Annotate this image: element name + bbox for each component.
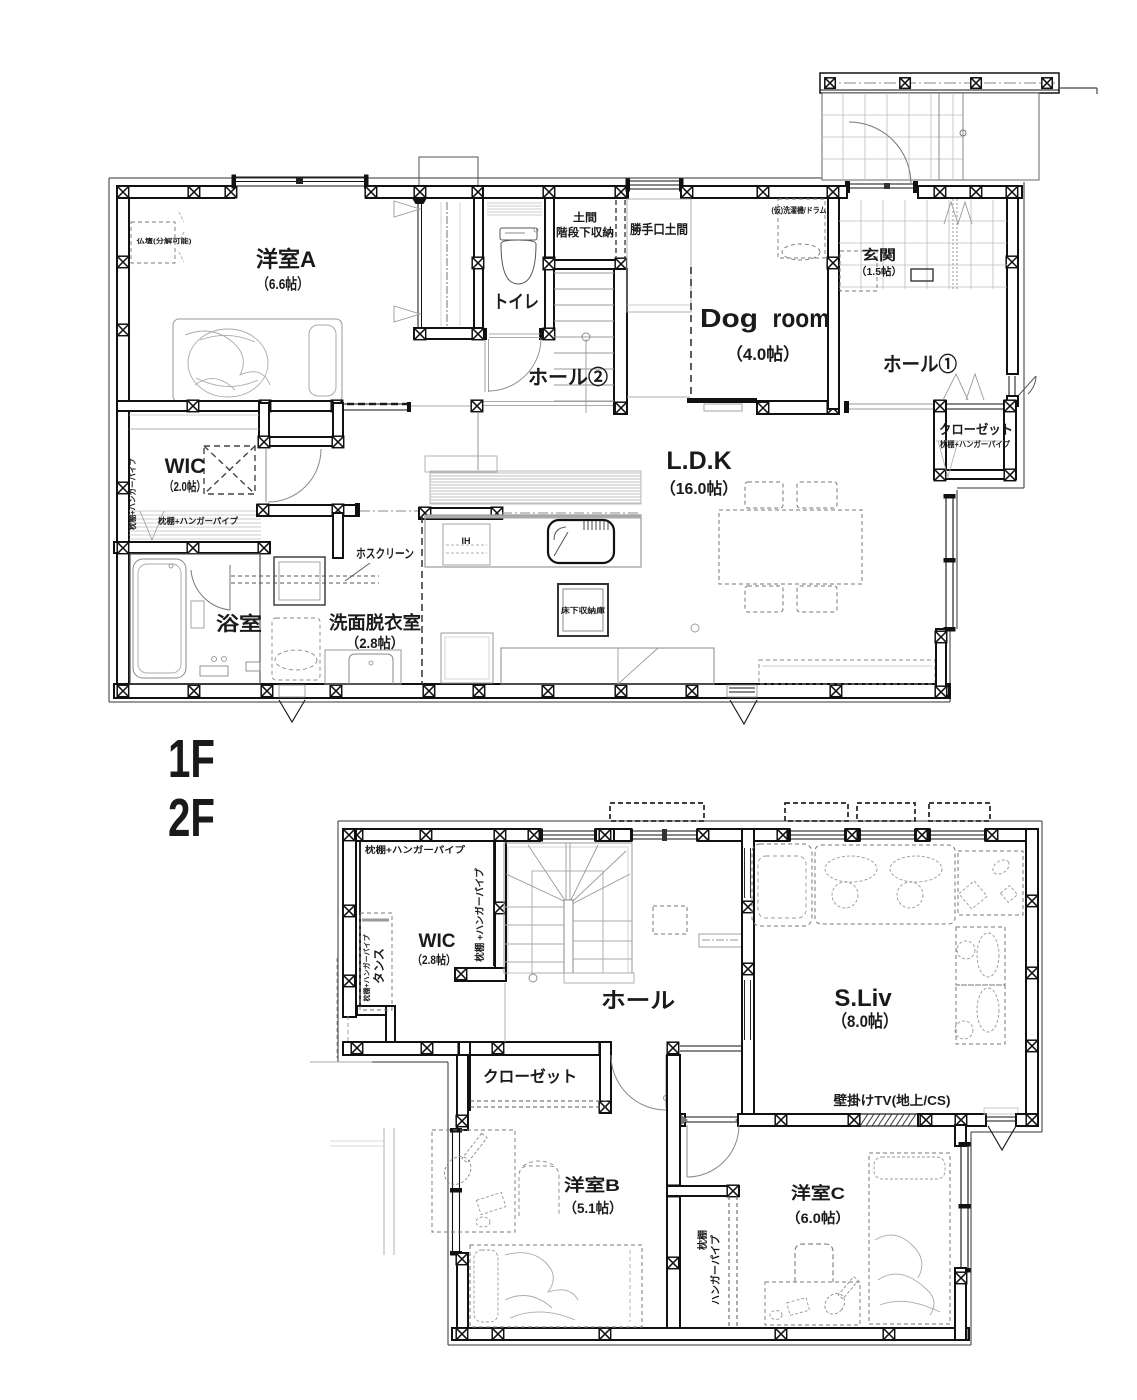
svg-text:枕棚+ハンガーパイプ: 枕棚+ハンガーパイプ <box>158 516 238 526</box>
svg-text:Dog: Dog <box>700 303 758 333</box>
svg-text:WIC: WIC <box>419 931 456 952</box>
svg-text:ホール①: ホール① <box>883 353 957 376</box>
svg-text:(仮)洗濯機/ドラム: (仮)洗濯機/ドラム <box>772 205 827 215</box>
svg-text:ホール: ホール <box>601 988 675 1013</box>
svg-text:L.D.K: L.D.K <box>666 447 731 475</box>
svg-text:洋室C: 洋室C <box>791 1183 845 1203</box>
svg-text:S.Liv: S.Liv <box>834 985 892 1012</box>
svg-text:（6.6帖）: （6.6帖） <box>257 275 309 293</box>
svg-text:壁掛けTV(地上/CS): 壁掛けTV(地上/CS) <box>834 1093 951 1108</box>
svg-text:洗面脱衣室: 洗面脱衣室 <box>329 612 421 633</box>
svg-text:1F: 1F <box>168 729 215 789</box>
svg-text:2F: 2F <box>168 788 215 848</box>
svg-text:枕棚 +ハンガーパイプ: 枕棚 +ハンガーパイプ <box>474 868 486 962</box>
svg-text:（4.0帖）: （4.0帖） <box>726 344 800 364</box>
svg-text:枕棚+ハンガーパイプ: 枕棚+ハンガーパイプ <box>127 458 137 530</box>
svg-text:（2.8帖）: （2.8帖） <box>412 952 456 967</box>
svg-text:（8.0帖）: （8.0帖） <box>832 1011 898 1031</box>
svg-text:枕棚: 枕棚 <box>696 1230 709 1250</box>
svg-text:（5.1帖）: （5.1帖） <box>564 1200 623 1216</box>
svg-text:枕棚+ハンガーパイプ: 枕棚+ハンガーパイプ <box>362 933 371 1001</box>
svg-text:クローゼット: クローゼット <box>483 1067 577 1086</box>
svg-text:クローゼット: クローゼット <box>939 422 1013 437</box>
svg-text:玄関: 玄関 <box>862 247 896 263</box>
svg-text:（16.0帖）: （16.0帖） <box>660 479 738 498</box>
svg-text:IH: IH <box>462 536 471 546</box>
svg-text:仏壇(分解可能): 仏壇(分解可能) <box>137 236 192 245</box>
svg-text:土間: 土間 <box>573 210 597 224</box>
svg-text:浴室: 浴室 <box>216 612 262 635</box>
svg-text:枕棚+ハンガーパイプ: 枕棚+ハンガーパイプ <box>940 439 1011 449</box>
svg-text:タンス: タンス <box>372 948 386 984</box>
svg-text:洋室B: 洋室B <box>564 1175 620 1195</box>
svg-text:ホスクリーン: ホスクリーン <box>356 547 414 561</box>
svg-text:洋室A: 洋室A <box>256 247 316 272</box>
svg-text:（6.0帖）: （6.0帖） <box>786 1210 850 1226</box>
svg-text:床下収納庫: 床下収納庫 <box>561 605 606 615</box>
svg-text:room: room <box>773 303 830 333</box>
svg-text:枕棚+ハンガーパイプ: 枕棚+ハンガーパイプ <box>365 844 466 855</box>
svg-text:（2.0帖）: （2.0帖） <box>164 479 206 494</box>
svg-text:（2.8帖）: （2.8帖） <box>346 635 404 651</box>
svg-text:ホール②: ホール② <box>528 366 608 389</box>
svg-text:トイレ: トイレ <box>493 292 539 312</box>
svg-text:WIC: WIC <box>165 455 206 478</box>
svg-text:階段下収納: 階段下収納 <box>556 225 614 239</box>
svg-text:勝手口土間: 勝手口土間 <box>630 222 688 237</box>
svg-text:ハンガーパイプ: ハンガーパイプ <box>709 1234 722 1305</box>
svg-text:（1.5帖）: （1.5帖） <box>856 265 902 278</box>
